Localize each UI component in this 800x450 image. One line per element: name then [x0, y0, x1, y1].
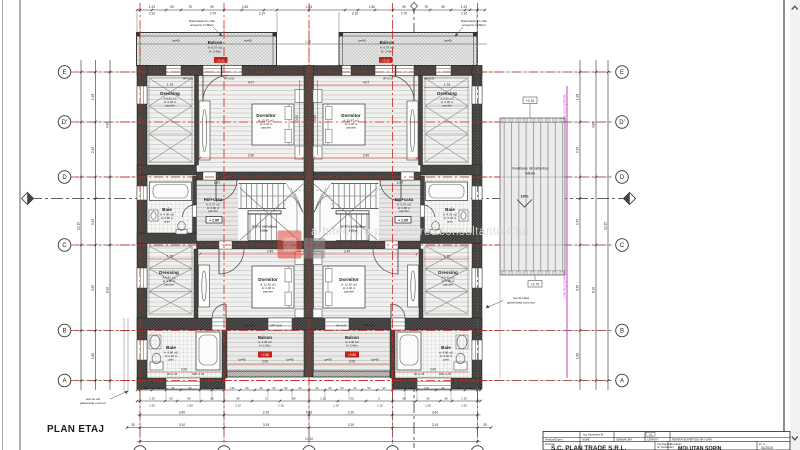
- svg-text:1.50: 1.50: [425, 404, 431, 408]
- svg-text:+2.70: +2.70: [531, 283, 540, 287]
- svg-text:+ 2.85: + 2.85: [209, 219, 219, 223]
- svg-text:1.98: 1.98: [576, 94, 580, 100]
- svg-text:+2.85: +2.85: [261, 353, 269, 357]
- svg-text:6.90: 6.90: [106, 287, 110, 293]
- svg-text:3.35: 3.35: [91, 285, 95, 291]
- svg-text:3.60: 3.60: [179, 411, 185, 415]
- svg-text:parchet: parchet: [442, 103, 452, 107]
- svg-text:HP+1.65: HP+1.65: [167, 372, 178, 376]
- svg-text:Dormitor: Dormitor: [339, 277, 359, 282]
- svg-text:parchet: parchet: [443, 282, 453, 286]
- svg-text:1.35: 1.35: [229, 386, 235, 390]
- svg-text:HPP+0.00: HPP+0.00: [363, 324, 376, 328]
- svg-text:Dressing: Dressing: [438, 270, 458, 275]
- svg-text:3.15: 3.15: [348, 423, 354, 427]
- svg-text:CERINTA: CERINTA: [647, 438, 658, 442]
- svg-text:3.00: 3.00: [313, 115, 317, 121]
- svg-text:REFERAT/EXPERTIZA NR./ DATA: REFERAT/EXPERTIZA NR./ DATA: [672, 438, 712, 442]
- svg-text:Dressing: Dressing: [159, 270, 179, 275]
- svg-text:1.75: 1.75: [444, 83, 450, 87]
- svg-text:1.98: 1.98: [91, 94, 95, 100]
- svg-text:SEMNATURA: SEMNATURA: [616, 438, 632, 442]
- svg-text:3.15: 3.15: [263, 423, 269, 427]
- svg-text:3.00: 3.00: [295, 115, 299, 121]
- svg-text:3.10: 3.10: [179, 423, 185, 427]
- svg-text:2.15: 2.15: [91, 147, 95, 153]
- svg-text:90: 90: [292, 397, 296, 401]
- svg-text:D': D': [619, 120, 624, 126]
- svg-text:Baie: Baie: [166, 345, 176, 350]
- svg-text:2.15: 2.15: [576, 147, 580, 153]
- svg-text:+2.85: +2.85: [348, 353, 356, 357]
- svg-text:1.22: 1.22: [149, 5, 155, 9]
- svg-text:1.25: 1.25: [306, 5, 312, 9]
- svg-text:2.85m: 2.85m: [260, 228, 269, 232]
- svg-text:3.10: 3.10: [432, 423, 438, 427]
- svg-text:tg=90: tg=90: [238, 358, 246, 362]
- svg-text:90: 90: [402, 5, 406, 9]
- svg-text:1.30: 1.30: [149, 397, 155, 401]
- svg-text:+2.35: +2.35: [382, 59, 390, 63]
- svg-text:Linia de proprietate: Linia de proprietate: [563, 271, 567, 299]
- svg-text:D: D: [620, 175, 625, 181]
- svg-text:Dormitor: Dormitor: [256, 113, 276, 118]
- svg-text:HP+0.00: HP+0.00: [244, 324, 255, 328]
- svg-text:50: 50: [426, 397, 430, 401]
- svg-text:3.45: 3.45: [91, 219, 95, 225]
- svg-text:acoperire h=90cm: acoperire h=90cm: [190, 23, 215, 27]
- svg-text:2.45: 2.45: [267, 250, 273, 254]
- svg-text:H: 2.40m: H: 2.40m: [209, 49, 221, 53]
- svg-text:4.07: 4.07: [248, 81, 254, 85]
- svg-text:2.70: 2.70: [210, 12, 216, 16]
- svg-text:HP+1.65: HP+1.65: [414, 372, 425, 376]
- svg-text:90: 90: [402, 397, 406, 401]
- svg-text:1.20: 1.20: [333, 404, 339, 408]
- svg-text:gres: gres: [168, 357, 174, 361]
- svg-text:gres: gres: [447, 219, 453, 223]
- svg-text:2.90: 2.90: [363, 154, 369, 158]
- svg-text:1.50: 1.50: [187, 404, 193, 408]
- svg-text:50: 50: [169, 397, 173, 401]
- svg-text:parchet: parchet: [346, 125, 356, 129]
- svg-text:2.90: 2.90: [248, 154, 254, 158]
- svg-text:parchet: parchet: [263, 289, 273, 293]
- svg-text:Verificat/Expert: Verificat/Expert: [545, 438, 563, 442]
- svg-text:2.10: 2.10: [259, 12, 265, 16]
- svg-text:Balcon: Balcon: [208, 40, 223, 45]
- svg-text:Invelitoare din tabla lisa: Invelitoare din tabla lisa: [512, 167, 548, 171]
- svg-text:75: 75: [424, 5, 428, 9]
- svg-text:faltuita: faltuita: [525, 172, 535, 176]
- svg-text:50: 50: [170, 5, 174, 9]
- svg-text:50: 50: [441, 5, 445, 9]
- svg-text:1.60: 1.60: [576, 353, 580, 359]
- svg-text:HP+0.00: HP+0.00: [336, 324, 347, 328]
- svg-text:1.30: 1.30: [461, 397, 467, 401]
- svg-text:Baie: Baie: [441, 345, 451, 350]
- svg-text:MOLUTAN SORIN: MOLUTAN SORIN: [678, 446, 722, 450]
- svg-text:galvanizata a promor: galvanizata a promor: [507, 301, 535, 305]
- svg-text:3.35: 3.35: [576, 285, 580, 291]
- svg-text:1.75: 1.75: [444, 255, 450, 259]
- svg-text:2.00: 2.00: [430, 368, 436, 372]
- svg-text:Baie: Baie: [162, 207, 172, 212]
- svg-text:90: 90: [187, 397, 191, 401]
- svg-text:D': D': [62, 120, 67, 126]
- svg-text:B: B: [62, 329, 66, 335]
- svg-text:Ing. Munteanu M.: Ing. Munteanu M.: [583, 432, 604, 436]
- svg-text:2.10: 2.10: [461, 12, 467, 16]
- svg-text:90: 90: [350, 397, 354, 401]
- svg-text:parchet: parchet: [208, 209, 218, 213]
- svg-text:HP+0.00: HP+0.00: [183, 76, 194, 80]
- svg-text:+ 2.85: + 2.85: [398, 219, 408, 223]
- svg-text:1.50: 1.50: [369, 5, 375, 9]
- svg-text:HPP+0.00: HPP+0.00: [270, 324, 283, 328]
- svg-text:4.07: 4.07: [363, 81, 369, 85]
- svg-text:HP+0.00: HP+0.00: [224, 76, 235, 80]
- svg-text:3.60: 3.60: [432, 411, 438, 415]
- svg-text:25: 25: [483, 423, 487, 427]
- svg-text:Dressing: Dressing: [437, 91, 457, 96]
- svg-text:90: 90: [236, 397, 240, 401]
- svg-text:2.10: 2.10: [235, 404, 241, 408]
- svg-text:2.10: 2.10: [377, 404, 383, 408]
- svg-text:2.70: 2.70: [401, 12, 407, 16]
- svg-text:2.00: 2.00: [262, 360, 268, 364]
- svg-text:A: A: [62, 379, 66, 385]
- svg-text:12.15: 12.15: [604, 222, 608, 230]
- svg-text:1.25: 1.25: [320, 397, 326, 401]
- svg-text:90: 90: [210, 5, 214, 9]
- svg-text:1.50: 1.50: [461, 404, 467, 408]
- svg-text:2.10: 2.10: [263, 411, 269, 415]
- svg-text:Dormitor: Dormitor: [258, 277, 278, 282]
- svg-text:12.15: 12.15: [77, 222, 81, 230]
- svg-text:10%: 10%: [520, 194, 528, 199]
- svg-text:+2.10: +2.10: [526, 99, 535, 103]
- svg-text:B: B: [620, 329, 624, 335]
- svg-text:parchet: parchet: [344, 289, 354, 293]
- svg-text:2.10: 2.10: [149, 12, 155, 16]
- svg-text:parchet: parchet: [164, 282, 174, 286]
- svg-text:1.35: 1.35: [423, 386, 429, 390]
- svg-text:Dressing: Dressing: [160, 91, 180, 96]
- svg-text:1.50: 1.50: [149, 404, 155, 408]
- svg-text:6.90: 6.90: [592, 287, 596, 293]
- svg-text:acoperire h=90cm: acoperire h=90cm: [462, 23, 487, 27]
- svg-text:D: D: [62, 175, 67, 181]
- svg-text:tg=90: tg=90: [324, 358, 332, 362]
- svg-text:1.20: 1.20: [278, 404, 284, 408]
- svg-text:2.00: 2.00: [181, 368, 187, 372]
- svg-text:1.25: 1.25: [305, 40, 311, 44]
- svg-text:25: 25: [131, 423, 135, 427]
- svg-text:Set de tabla: Set de tabla: [513, 296, 529, 300]
- svg-text:1.75: 1.75: [167, 83, 173, 87]
- svg-text:90: 90: [444, 397, 448, 401]
- svg-text:HPP+1.65: HPP+1.65: [192, 372, 205, 376]
- svg-text:2.45: 2.45: [576, 219, 580, 225]
- svg-text:1.97: 1.97: [214, 181, 220, 185]
- svg-text:5.90: 5.90: [306, 411, 312, 415]
- svg-text:E: E: [620, 70, 624, 76]
- svg-text:Linia de proprietate: Linia de proprietate: [563, 94, 567, 122]
- svg-text:parchet: parchet: [399, 209, 409, 213]
- svg-text:NUME: NUME: [582, 438, 590, 442]
- svg-text:PLAN ETAJ: PLAN ETAJ: [47, 424, 104, 435]
- svg-text:50: 50: [210, 397, 214, 401]
- svg-text:tg=90: tg=90: [444, 39, 452, 43]
- svg-text:2.00: 2.00: [349, 360, 355, 364]
- svg-text:1.22: 1.22: [461, 5, 467, 9]
- svg-text:2.10: 2.10: [348, 411, 354, 415]
- svg-text:1.60: 1.60: [91, 353, 95, 359]
- svg-text:HPP+1.65: HPP+1.65: [439, 372, 452, 376]
- svg-text:parchet: parchet: [165, 103, 175, 107]
- svg-text:HP+0.00: HP+0.00: [424, 76, 435, 80]
- svg-text:Hol+casa: Hol+casa: [204, 197, 223, 202]
- svg-text:1.97: 1.97: [397, 181, 403, 185]
- svg-text:S.C. PLAN TRADE S.R.L.: S.C. PLAN TRADE S.R.L.: [551, 445, 626, 450]
- svg-text:Baie: Baie: [445, 207, 455, 212]
- svg-text:arhitectura proiectare&consult: arhitectura proiectare&consultanta Cluj: [311, 226, 529, 238]
- svg-text:Hol+casa: Hol+casa: [395, 197, 414, 202]
- svg-text:13.00: 13.00: [305, 437, 313, 441]
- svg-text:H: 2.40m: H: 2.40m: [346, 343, 358, 347]
- svg-text:1.50: 1.50: [242, 5, 248, 9]
- svg-text:tg=90: tg=90: [172, 39, 180, 43]
- svg-text:4.60: 4.60: [592, 122, 596, 128]
- svg-text:1.75: 1.75: [167, 255, 173, 259]
- svg-text:E: E: [62, 70, 66, 76]
- svg-text:A: A: [620, 379, 624, 385]
- svg-text:4.40: 4.40: [106, 122, 110, 128]
- svg-text:Dormitor: Dormitor: [341, 113, 361, 118]
- svg-text:gres: gres: [164, 219, 170, 223]
- svg-text:C: C: [620, 243, 625, 249]
- svg-text:tg=90: tg=90: [358, 39, 366, 43]
- svg-text:H: 2.40m: H: 2.40m: [381, 49, 393, 53]
- svg-text:tg=90: tg=90: [286, 358, 294, 362]
- svg-text:2.45: 2.45: [344, 250, 350, 254]
- svg-text:tg=90: tg=90: [244, 39, 252, 43]
- svg-text:2.10: 2.10: [352, 12, 358, 16]
- svg-text:galvanizata u promor: galvanizata u promor: [80, 401, 106, 405]
- svg-text:Str. Dorobantilor: Str. Dorobantilor: [657, 446, 674, 449]
- svg-text:01/2018: 01/2018: [761, 446, 773, 450]
- svg-text:gres: gres: [443, 357, 449, 361]
- svg-text:75: 75: [188, 5, 192, 9]
- svg-text:C: C: [62, 243, 67, 249]
- svg-text:parchet: parchet: [261, 125, 271, 129]
- svg-text:tg=90: tg=90: [371, 358, 379, 362]
- svg-text:H: 2.40m: H: 2.40m: [259, 343, 271, 347]
